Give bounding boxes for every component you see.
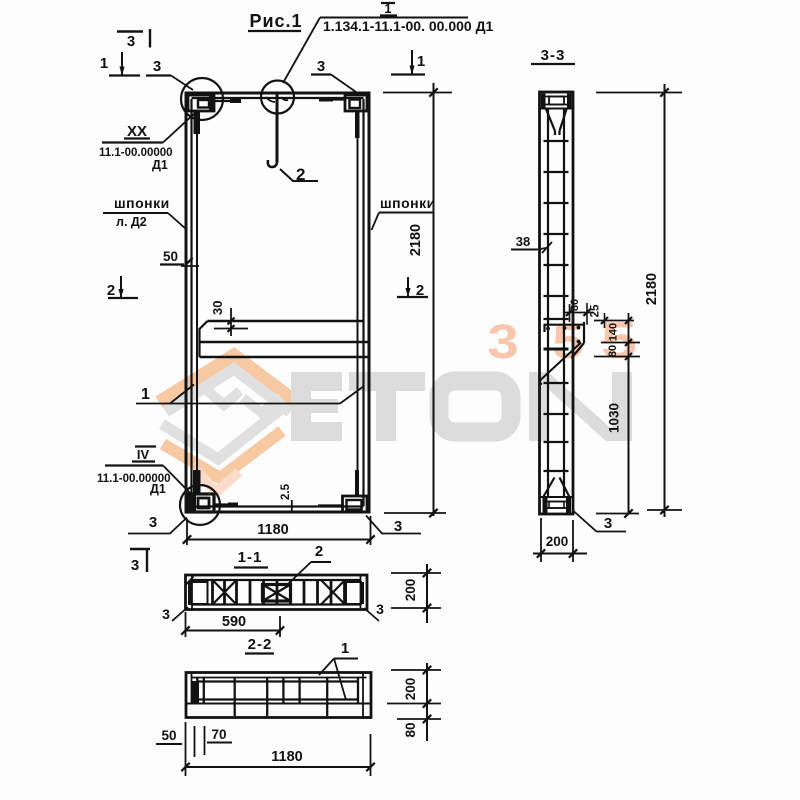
svg-text:3: 3 [153, 58, 161, 75]
svg-text:2: 2 [107, 282, 115, 299]
svg-text:1: 1 [141, 386, 150, 403]
svg-text:3: 3 [149, 514, 157, 531]
svg-text:3: 3 [131, 557, 139, 574]
svg-text:50: 50 [163, 249, 178, 264]
svg-text:1: 1 [417, 53, 425, 70]
svg-text:3: 3 [162, 606, 170, 622]
svg-text:80: 80 [607, 345, 619, 357]
svg-text:2: 2 [315, 543, 323, 560]
svg-text:25: 25 [590, 304, 602, 317]
svg-text:1: 1 [341, 640, 349, 657]
svg-text:2-2: 2-2 [248, 636, 273, 653]
svg-text:Д1: Д1 [150, 482, 166, 496]
svg-text:2.5: 2.5 [280, 483, 292, 500]
svg-text:2: 2 [296, 165, 305, 184]
svg-text:3: 3 [376, 601, 384, 617]
svg-text:200: 200 [403, 678, 418, 701]
svg-text:шпонки: шпонки [114, 195, 170, 211]
svg-text:200: 200 [403, 579, 418, 602]
svg-text:1180: 1180 [257, 522, 288, 538]
svg-text:1.134.1-11.1-00. 00.000 Д1: 1.134.1-11.1-00. 00.000 Д1 [323, 18, 494, 34]
svg-text:1030: 1030 [607, 403, 622, 433]
svg-text:50: 50 [161, 728, 176, 743]
svg-text:1: 1 [100, 55, 108, 72]
svg-text:1-1: 1-1 [238, 549, 263, 566]
svg-text:3: 3 [604, 515, 612, 532]
svg-text:80: 80 [403, 722, 418, 737]
svg-text:590: 590 [222, 614, 246, 630]
svg-text:80: 80 [569, 299, 581, 311]
svg-text:140: 140 [608, 323, 620, 341]
svg-text:Рис.1: Рис.1 [249, 11, 302, 31]
svg-text:IV: IV [137, 447, 150, 462]
svg-text:3: 3 [127, 33, 135, 50]
svg-text:38: 38 [516, 234, 530, 249]
svg-text:70: 70 [211, 727, 226, 742]
svg-text:2180: 2180 [408, 224, 424, 256]
svg-text:шпонки: шпонки [380, 195, 436, 211]
svg-text:3: 3 [487, 315, 519, 369]
svg-text:1180: 1180 [271, 749, 302, 765]
svg-text:30: 30 [210, 301, 225, 315]
svg-text:л. Д2: л. Д2 [116, 215, 147, 229]
svg-text:3-3: 3-3 [541, 47, 566, 64]
svg-text:3: 3 [394, 518, 402, 535]
svg-text:200: 200 [546, 534, 569, 549]
svg-text:2180: 2180 [644, 273, 660, 305]
svg-text:Д1: Д1 [152, 158, 168, 172]
svg-text:3: 3 [317, 58, 325, 75]
